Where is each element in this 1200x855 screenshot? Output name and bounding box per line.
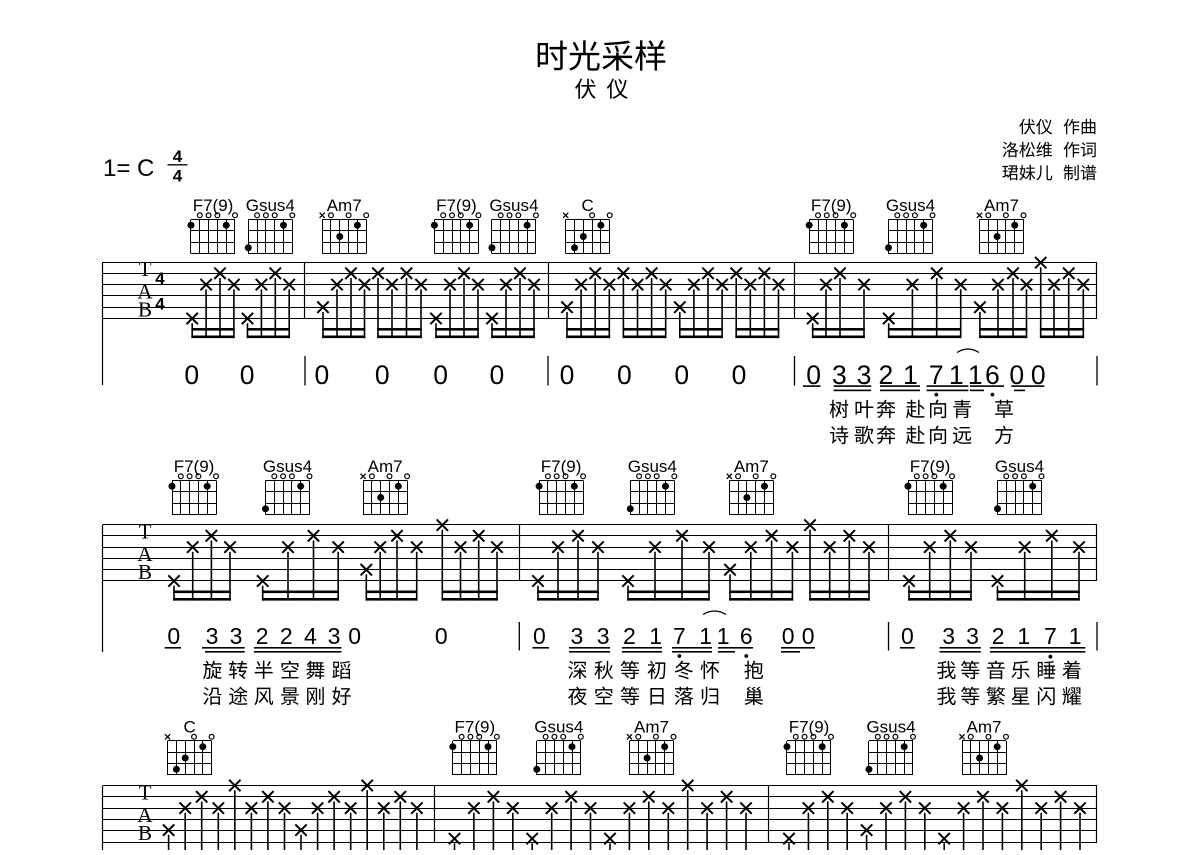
svg-text:T: T — [139, 780, 152, 804]
svg-text:4: 4 — [173, 167, 183, 186]
svg-text:F7(9): F7(9) — [193, 196, 234, 215]
svg-text:4: 4 — [173, 147, 183, 166]
svg-text:Gsus4: Gsus4 — [866, 718, 915, 737]
svg-text:1= C: 1= C — [103, 155, 154, 182]
svg-text:F7(9): F7(9) — [910, 457, 951, 476]
svg-text:Gsus4: Gsus4 — [628, 457, 677, 476]
svg-text:B: B — [138, 821, 152, 845]
svg-text:4: 4 — [155, 269, 165, 288]
svg-text:F7(9): F7(9) — [811, 196, 852, 215]
svg-text:F7(9): F7(9) — [454, 718, 495, 737]
svg-text:T: T — [139, 257, 152, 281]
svg-text:Gsus4: Gsus4 — [246, 196, 295, 215]
svg-text:T: T — [139, 519, 152, 543]
svg-text:Gsus4: Gsus4 — [995, 457, 1044, 476]
svg-text:C: C — [582, 196, 594, 215]
svg-text:B: B — [138, 298, 152, 322]
svg-text:F7(9): F7(9) — [436, 196, 477, 215]
svg-text:4: 4 — [155, 295, 165, 314]
svg-text:B: B — [138, 560, 152, 584]
svg-text:Gsus4: Gsus4 — [263, 457, 312, 476]
svg-text:Am7: Am7 — [734, 457, 769, 476]
svg-text:F7(9): F7(9) — [789, 718, 830, 737]
svg-text:Gsus4: Gsus4 — [886, 196, 935, 215]
svg-text:C: C — [183, 718, 195, 737]
svg-text:Am7: Am7 — [368, 457, 403, 476]
svg-text:Am7: Am7 — [984, 196, 1019, 215]
svg-text:Gsus4: Gsus4 — [489, 196, 538, 215]
svg-text:Am7: Am7 — [634, 718, 669, 737]
svg-text:F7(9): F7(9) — [174, 457, 215, 476]
svg-text:Am7: Am7 — [327, 196, 362, 215]
svg-text:F7(9): F7(9) — [541, 457, 582, 476]
svg-text:Am7: Am7 — [967, 718, 1002, 737]
svg-text:Gsus4: Gsus4 — [534, 718, 583, 737]
